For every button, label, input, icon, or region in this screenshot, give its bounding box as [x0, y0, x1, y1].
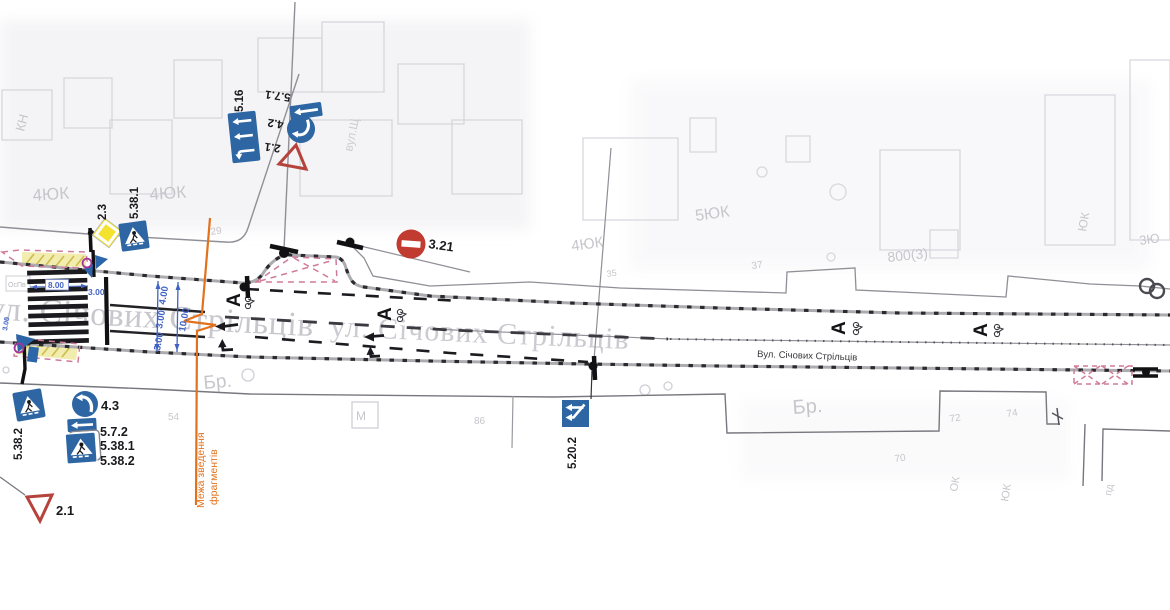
svg-text:5.38.1: 5.38.1 — [129, 186, 141, 219]
svg-text:5.38.2: 5.38.2 — [13, 428, 25, 460]
svg-text:3Ю: 3Ю — [1138, 230, 1160, 248]
svg-text:4ЮК: 4ЮК — [570, 234, 605, 255]
svg-text:74: 74 — [1006, 407, 1019, 420]
svg-text:5.38.1: 5.38.1 — [100, 439, 135, 453]
svg-text:5.20.2: 5.20.2 — [567, 437, 579, 469]
svg-text:2.1: 2.1 — [263, 140, 281, 154]
svg-text:4ЮК: 4ЮК — [149, 182, 187, 204]
svg-text:ОК: ОК — [948, 475, 963, 492]
svg-text:5.7.2: 5.7.2 — [100, 425, 128, 439]
svg-text:А: А — [375, 307, 396, 321]
svg-text:4.2: 4.2 — [267, 116, 285, 130]
svg-text:2.3: 2.3 — [97, 204, 109, 220]
svg-text:54: 54 — [168, 412, 180, 423]
svg-text:5.16: 5.16 — [234, 90, 246, 112]
svg-text:М: М — [356, 409, 366, 423]
svg-text:Бр.: Бр. — [203, 371, 233, 394]
svg-text:Межа зведення: Межа зведення — [195, 433, 207, 509]
svg-text:37: 37 — [751, 259, 764, 272]
svg-text:А: А — [971, 323, 992, 337]
svg-text:ОсПв: ОсПв — [8, 282, 26, 289]
svg-text:А: А — [829, 321, 850, 335]
svg-text:86: 86 — [474, 416, 486, 427]
svg-text:фрагментів: фрагментів — [208, 449, 220, 505]
svg-text:А: А — [224, 293, 245, 307]
svg-text:Вул. Січових Стрільців: Вул. Січових Стрільців — [757, 349, 858, 363]
svg-text:3.21: 3.21 — [428, 236, 455, 254]
svg-text:ЮК: ЮК — [999, 483, 1014, 503]
svg-text:70: 70 — [894, 452, 907, 465]
svg-text:72: 72 — [949, 412, 962, 425]
svg-text:35: 35 — [606, 268, 617, 279]
svg-text:2.1: 2.1 — [56, 503, 74, 518]
svg-text:8.00: 8.00 — [48, 281, 64, 290]
svg-text:4.3: 4.3 — [101, 398, 119, 413]
svg-text:4ЮК: 4ЮК — [32, 183, 70, 205]
svg-text:3.00: 3.00 — [2, 317, 11, 332]
svg-text:3.00: 3.00 — [88, 287, 105, 297]
svg-text:5.38.2: 5.38.2 — [100, 454, 135, 468]
svg-text:29: 29 — [210, 225, 223, 238]
svg-text:пд: пд — [1103, 483, 1116, 496]
svg-text:3.00: 3.00 — [152, 331, 166, 351]
svg-text:Бр.: Бр. — [792, 395, 823, 419]
